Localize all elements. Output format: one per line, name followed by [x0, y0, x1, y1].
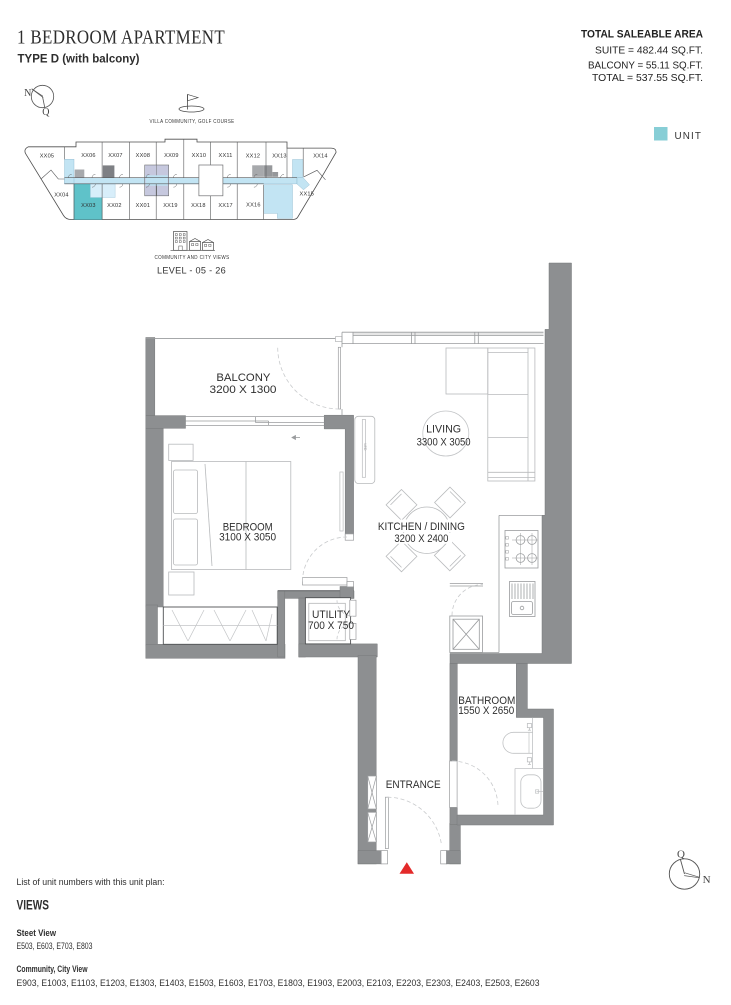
svg-text:N: N — [703, 874, 711, 886]
svg-text:BALCONY = 55.11 SQ.FT.: BALCONY = 55.11 SQ.FT. — [588, 60, 703, 71]
svg-text:KITCHEN / DINING: KITCHEN / DINING — [378, 521, 465, 533]
svg-text:N: N — [24, 88, 31, 99]
svg-text:700 X 750: 700 X 750 — [308, 620, 354, 632]
svg-text:UTILITY: UTILITY — [312, 609, 351, 621]
svg-text:Steet View: Steet View — [17, 928, 57, 938]
svg-text:TYPE D (with balcony): TYPE D (with balcony) — [18, 54, 140, 66]
svg-text:3100 X 3050: 3100 X 3050 — [219, 532, 276, 544]
svg-text:XX16: XX16 — [246, 203, 260, 209]
svg-text:VILLA COMMUNITY, GOLF COURSE: VILLA COMMUNITY, GOLF COURSE — [150, 119, 235, 125]
svg-text:3300 X 3050: 3300 X 3050 — [417, 436, 471, 448]
svg-text:TOTAL SALEABLE AREA: TOTAL SALEABLE AREA — [581, 29, 703, 41]
svg-text:E903, E1003, E1103, E1203, E13: E903, E1003, E1103, E1203, E1303, E1403,… — [17, 978, 540, 988]
svg-text:XX11: XX11 — [219, 153, 233, 159]
svg-text:XX04: XX04 — [54, 193, 68, 199]
svg-text:LIVING: LIVING — [426, 423, 461, 435]
svg-text:1 BEDROOM APARTMENT: 1 BEDROOM APARTMENT — [17, 28, 225, 49]
svg-text:XX10: XX10 — [192, 153, 206, 159]
svg-text:ENTRANCE: ENTRANCE — [386, 779, 441, 791]
svg-text:VIEWS: VIEWS — [17, 897, 50, 913]
svg-text:XX18: XX18 — [191, 203, 205, 209]
svg-text:XX03: XX03 — [81, 203, 95, 209]
svg-text:XX05: XX05 — [40, 154, 54, 160]
svg-text:3200 X 2400: 3200 X 2400 — [394, 533, 448, 545]
svg-text:E503, E603, E703, E803: E503, E603, E703, E803 — [17, 941, 93, 951]
svg-text:XX09: XX09 — [164, 153, 178, 159]
svg-text:1550 X 2650: 1550 X 2650 — [458, 705, 514, 717]
svg-text:Q: Q — [42, 107, 50, 118]
svg-text:Community, City View: Community, City View — [17, 964, 89, 974]
svg-text:XX07: XX07 — [108, 153, 122, 159]
svg-text:TOTAL = 537.55 SQ.FT.: TOTAL = 537.55 SQ.FT. — [592, 73, 703, 84]
svg-text:List of unit numbers with this: List of unit numbers with this unit plan… — [17, 877, 165, 887]
svg-text:Q: Q — [677, 849, 685, 861]
svg-text:UNIT: UNIT — [675, 130, 703, 142]
svg-text:SUITE = 482.44 SQ.FT.: SUITE = 482.44 SQ.FT. — [595, 46, 703, 57]
svg-text:COMMUNITY AND CITY VIEWS: COMMUNITY AND CITY VIEWS — [155, 255, 230, 261]
svg-text:XX08: XX08 — [136, 153, 150, 159]
svg-text:XX06: XX06 — [81, 153, 95, 159]
svg-text:XX12: XX12 — [246, 154, 260, 160]
svg-text:XX02: XX02 — [107, 203, 121, 209]
svg-text:XX17: XX17 — [218, 203, 232, 209]
svg-text:XX15: XX15 — [300, 192, 314, 198]
svg-text:LED: LED — [363, 444, 367, 451]
svg-text:XX01: XX01 — [136, 203, 150, 209]
svg-text:3200 X 1300: 3200 X 1300 — [210, 384, 277, 396]
svg-text:XX14: XX14 — [313, 154, 327, 160]
svg-text:BALCONY: BALCONY — [216, 372, 271, 384]
svg-text:XX13: XX13 — [272, 154, 286, 160]
svg-text:XX19: XX19 — [163, 203, 177, 209]
svg-text:LEVEL - 05 - 26: LEVEL - 05 - 26 — [157, 266, 226, 277]
